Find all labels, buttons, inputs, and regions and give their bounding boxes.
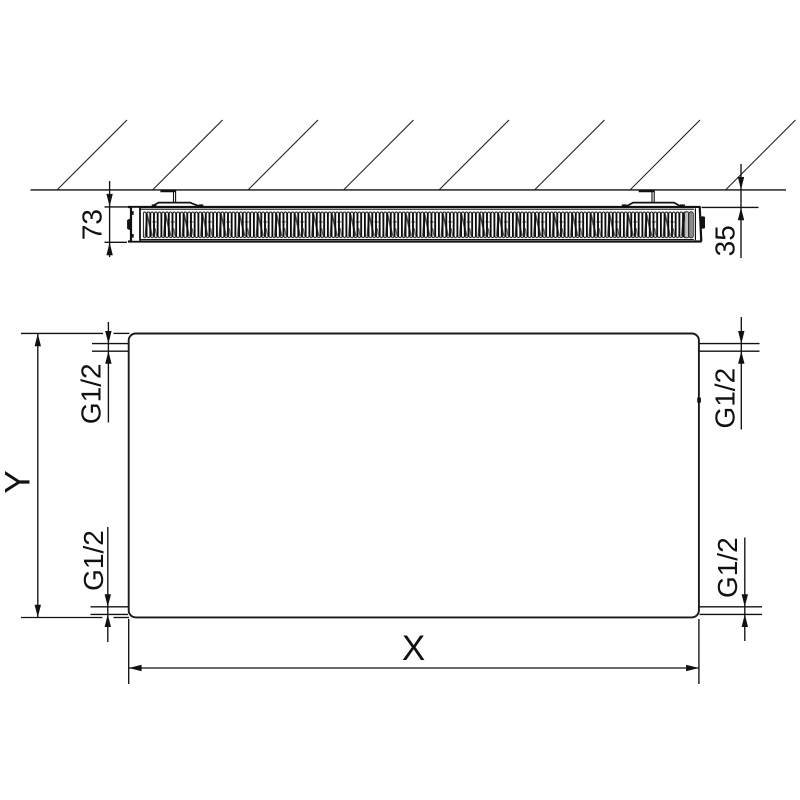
svg-text:G1/2: G1/2 <box>76 363 107 424</box>
svg-text:73: 73 <box>76 209 107 240</box>
svg-text:G1/2: G1/2 <box>78 530 109 591</box>
svg-text:Y: Y <box>0 470 37 493</box>
svg-text:35: 35 <box>709 225 740 256</box>
svg-text:X: X <box>402 629 425 668</box>
svg-text:G1/2: G1/2 <box>709 368 740 429</box>
svg-text:G1/2: G1/2 <box>712 537 743 598</box>
